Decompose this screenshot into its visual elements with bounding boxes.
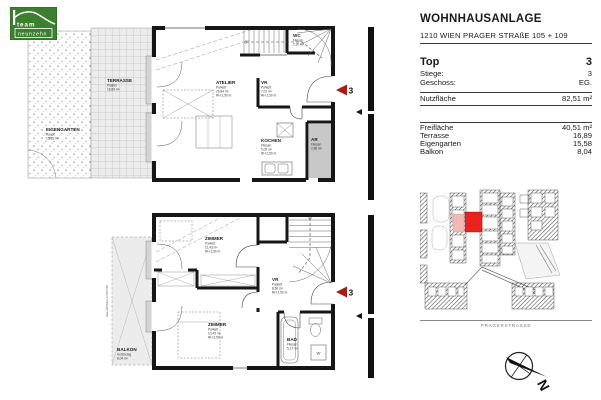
railing-text: GELÄNDER H=100 CM <box>105 285 109 317</box>
site-buildings <box>420 190 560 309</box>
entry-marker-arrow-lower <box>336 287 347 298</box>
nutzflaeche-label: Nutzfläche <box>420 95 456 103</box>
vr-lower-label: VR <box>272 277 279 282</box>
zimmer1-label: ZIMMER <box>205 236 224 241</box>
nutzflaeche-row: Nutzfläche 82,51 m² <box>420 95 592 103</box>
atelier-height: RH 2,50 m <box>216 94 232 98</box>
site-unit-red <box>465 212 482 232</box>
compass-north-label: N <box>534 377 553 393</box>
opening <box>152 57 157 103</box>
unit-top-row: Top 3 <box>420 56 592 68</box>
divider <box>420 92 592 93</box>
balkon-label: Balkon <box>420 148 443 156</box>
page-title: WOHNHAUSANLAGE <box>420 13 592 25</box>
eigengarten-area-label: 15,58 m² <box>46 137 59 141</box>
entry-marker-number-upper: 3 <box>349 86 354 96</box>
compass-needle <box>506 357 547 377</box>
logo-text-team: team <box>17 22 35 29</box>
eigengarten-area <box>28 31 91 178</box>
balkon-label: BALKON <box>117 347 137 352</box>
nutzflaeche-value: 82,51 m² <box>562 95 592 103</box>
zimmer1-height: RH 2,50 m <box>205 250 221 254</box>
vr-upper-label: VR <box>261 80 268 85</box>
page-subtitle: 1210 WIEN PRAGER STRAßE 105 + 109 <box>420 31 592 40</box>
site-plan <box>420 185 595 318</box>
ar-area: 2,86 m² <box>311 147 322 151</box>
logo-text-neunzehn: neunzehn <box>18 32 47 38</box>
balkon-value: 8,04 <box>577 148 592 156</box>
opening-entry <box>331 76 336 102</box>
bad-label: BAD <box>287 337 298 342</box>
opening-entry <box>331 282 336 304</box>
floorplans-drawing: TERRASSE Platten 16,89 m² EIGENGARTEN Ra… <box>0 0 415 400</box>
eigengarten-row: Eigengarten 15,58 <box>420 140 592 148</box>
entry-marker-arrow-upper <box>336 85 347 96</box>
bad-area: 5,17 m² <box>287 347 298 351</box>
balkon-row: Balkon 8,04 <box>420 148 592 156</box>
washer-label: W <box>317 351 321 356</box>
logo-graphic: team neunzehn <box>10 7 57 40</box>
street-label: PRAGERSTRASSE <box>420 320 592 328</box>
terrasse-label: TERRASSE <box>107 78 132 83</box>
vr-lower-height: RH 2,50 m <box>272 291 288 295</box>
stiege-label: Stiege: <box>420 70 444 78</box>
divider <box>420 105 592 106</box>
ar-label: AR <box>311 137 318 142</box>
balkon-area-label: 8,04 m² <box>117 357 128 361</box>
opening <box>240 178 252 183</box>
divider <box>420 43 592 44</box>
zimmer2-label: ZIMMER <box>208 322 227 327</box>
opening <box>152 114 157 161</box>
unit-stiege-row: Stiege: 3 <box>420 70 592 78</box>
terrasse-area-label: 16,89 m² <box>107 88 120 92</box>
unit-floor-lower <box>154 215 333 368</box>
ar-storage-fill <box>309 124 331 178</box>
logo: team neunzehn <box>10 7 57 45</box>
plan-lower: GELÄNDER H=100 CM <box>105 215 354 371</box>
eigengarten-label: EIGENGARTEN <box>46 127 80 132</box>
stiege-value: 3 <box>588 70 592 78</box>
geschoss-value: EG. <box>579 79 592 87</box>
plan-upper: TERRASSE Platten 16,89 m² EIGENGARTEN Ra… <box>28 26 354 183</box>
opening <box>152 302 157 331</box>
kochen-height: RH 2,50 m <box>261 152 277 156</box>
site-unit-pink <box>453 214 464 232</box>
zimmer2-height: RH 2,50 m <box>208 336 224 340</box>
section-wall-bars <box>356 27 374 378</box>
unit-geschoss-row: Geschoss: EG. <box>420 79 592 87</box>
geschoss-label: Geschoss: <box>420 79 456 87</box>
top-label: Top <box>420 56 439 68</box>
kochen-label: KOCHEN <box>261 138 282 143</box>
terrasse-grid <box>91 28 152 178</box>
atelier-label: ATELIER <box>216 80 236 85</box>
wc-area: 2,20 m² <box>293 43 304 47</box>
wc-label: WC <box>293 33 301 38</box>
opening <box>152 242 157 278</box>
vr-upper-height: RH 2,50 m <box>261 94 277 98</box>
entry-marker-number-lower: 3 <box>349 288 354 298</box>
top-value: 3 <box>586 56 592 68</box>
compass: N <box>494 344 566 398</box>
floorplan-page: TERRASSE Platten 16,89 m² EIGENGARTEN Ra… <box>0 0 601 400</box>
